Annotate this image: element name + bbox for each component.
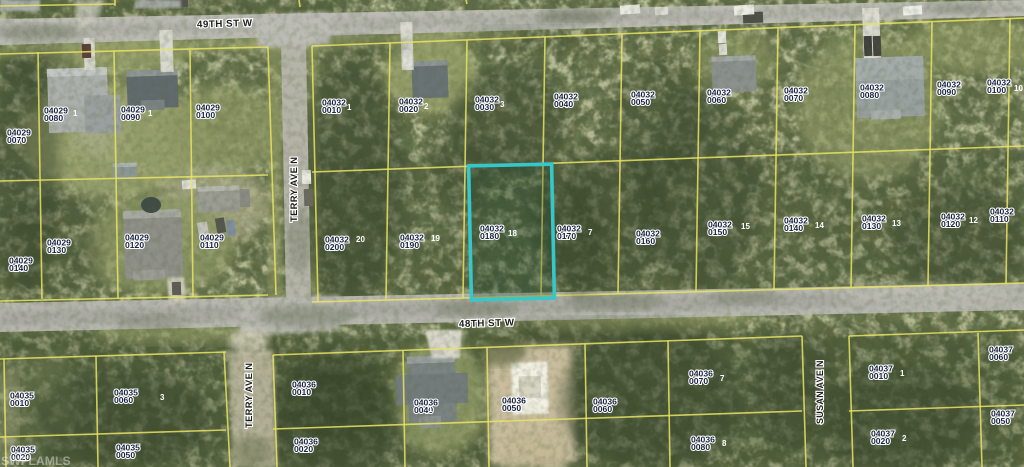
svg-text:3: 3 — [500, 100, 505, 109]
svg-text:SWFLAMLS: SWFLAMLS — [1, 454, 71, 467]
svg-text:12: 12 — [969, 216, 978, 225]
svg-text:49TH ST W: 49TH ST W — [197, 18, 253, 30]
svg-text:1: 1 — [900, 369, 905, 378]
svg-text:7: 7 — [720, 374, 725, 383]
svg-text:48TH ST W: 48TH ST W — [459, 318, 515, 330]
svg-text:2: 2 — [424, 102, 429, 111]
svg-text:1: 1 — [428, 405, 433, 414]
svg-text:1: 1 — [148, 109, 153, 118]
svg-text:2: 2 — [902, 434, 907, 443]
svg-text:20: 20 — [356, 235, 365, 244]
svg-text:10: 10 — [1014, 84, 1023, 93]
svg-text:7: 7 — [588, 228, 593, 237]
svg-text:3: 3 — [160, 393, 165, 402]
svg-text:TERRY AVE N: TERRY AVE N — [289, 157, 299, 222]
svg-text:15: 15 — [741, 222, 750, 231]
svg-text:1: 1 — [73, 109, 78, 118]
svg-text:14: 14 — [815, 221, 824, 230]
svg-text:1: 1 — [347, 103, 352, 112]
svg-text:18: 18 — [508, 229, 517, 238]
svg-text:13: 13 — [892, 219, 901, 228]
svg-text:8: 8 — [722, 439, 727, 448]
svg-text:19: 19 — [431, 234, 440, 243]
svg-text:SUSAN AVE N: SUSAN AVE N — [815, 360, 825, 424]
svg-text:TERRY AVE N: TERRY AVE N — [244, 363, 254, 428]
